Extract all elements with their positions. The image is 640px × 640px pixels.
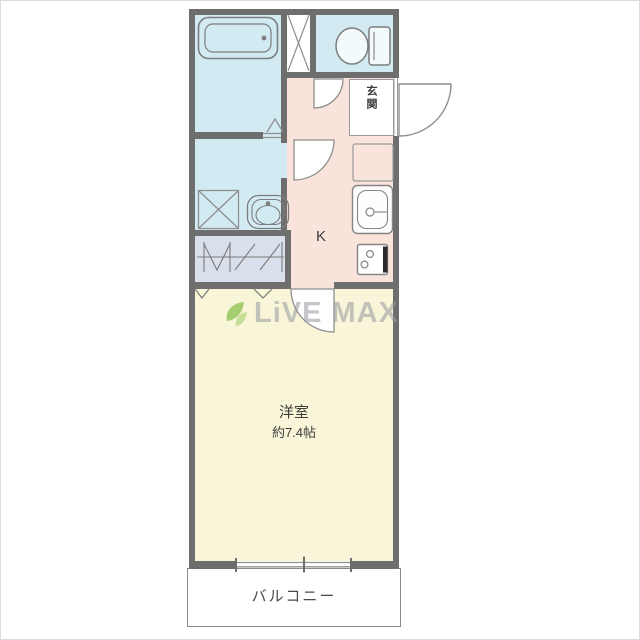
pipe-space-floor: [287, 15, 310, 72]
room-name: 洋室: [195, 402, 393, 424]
wall-toilet-left: [310, 9, 316, 72]
washroom-floor: [195, 139, 287, 230]
wall-washroom-right: [281, 178, 287, 236]
wall-washroom-right-stub: [281, 139, 287, 143]
wall-closet-right: [285, 230, 291, 289]
livemax-watermark-text: LiVE MAX: [254, 297, 399, 330]
wall-room-top-right: [334, 282, 399, 289]
toilet-room-floor: [316, 15, 393, 72]
wall-bottom-left: [189, 561, 236, 569]
leaf-icon: [223, 299, 251, 329]
room-label: 洋室 約7.4帖: [195, 402, 393, 443]
balcony-label: バルコニー: [187, 585, 401, 606]
room-size: 約7.4帖: [195, 424, 393, 443]
wall-bottom-right: [351, 561, 399, 569]
kitchen-label: K: [316, 228, 326, 245]
entrance-label: 玄関: [363, 85, 379, 111]
livemax-watermark: LiVE MAX: [223, 297, 399, 330]
wall-right-upper: [393, 9, 399, 78]
bathroom-floor: [195, 15, 281, 139]
wall-room-top-left: [189, 282, 291, 289]
closet-floor: [195, 236, 285, 282]
wall-bath-washroom: [189, 132, 263, 139]
entrance-door-frame: [394, 78, 398, 136]
wall-washroom-closet: [189, 230, 291, 236]
wall-top: [189, 9, 399, 15]
floorplan-image: 玄関 K 洋室 約7.4帖 バルコニー LiVE MAX: [0, 0, 640, 640]
wall-right-lower: [393, 136, 399, 568]
entrance-door-arc-icon: [399, 84, 451, 136]
wall-toilet-bottom: [281, 72, 399, 78]
